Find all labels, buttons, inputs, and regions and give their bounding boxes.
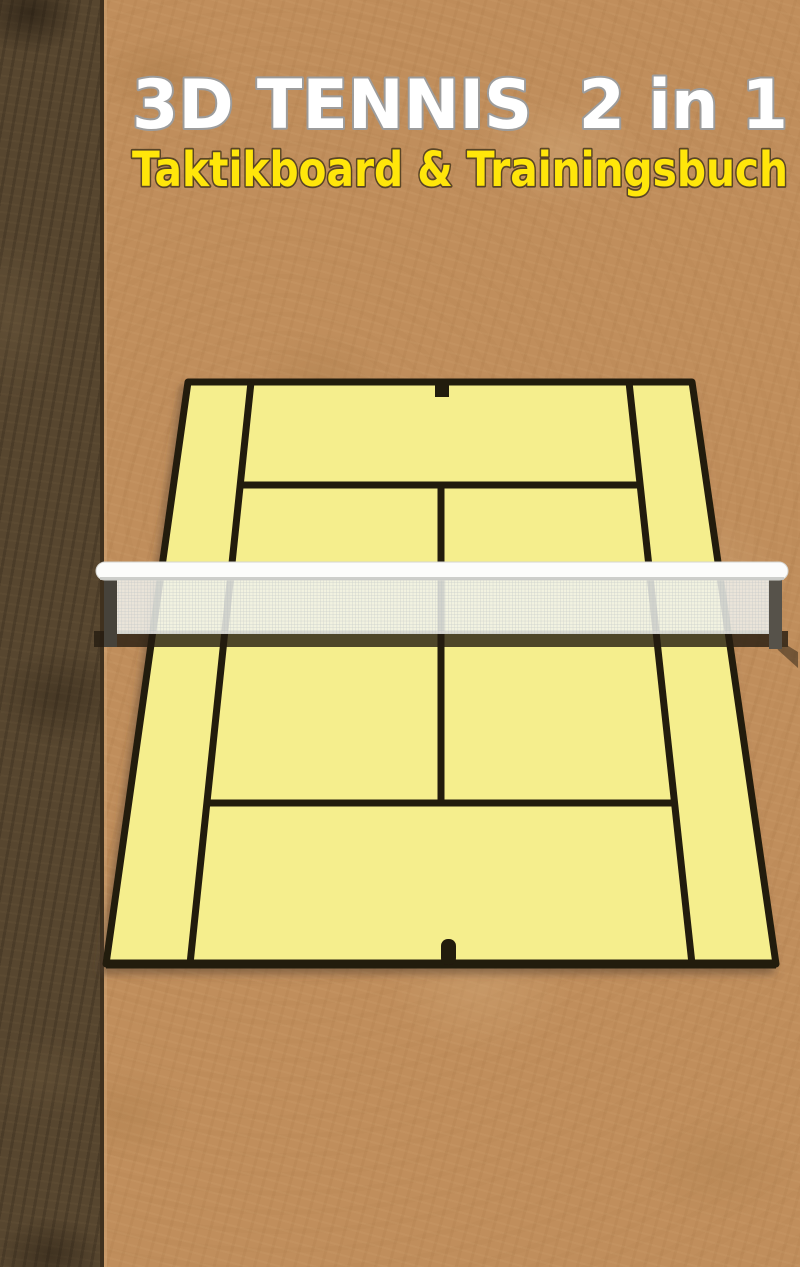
- net-band-shadow-edge: [100, 577, 784, 580]
- center-mark-bottom: [441, 939, 456, 965]
- cover-art: 3D TENNIS 2 in 1 Taktikboard & Trainings…: [0, 0, 800, 1267]
- cover-subtitle: Taktikboard & Trainingsbuch: [132, 142, 788, 198]
- tennis-court: [106, 382, 776, 965]
- net-mesh-grid: [104, 577, 780, 634]
- cover-title: 3D TENNIS 2 in 1: [132, 66, 788, 145]
- book-cover: 3D TENNIS 2 in 1 Taktikboard & Trainings…: [0, 0, 800, 1267]
- net-post-right: [769, 577, 782, 649]
- center-mark-top: [435, 382, 449, 397]
- net-post-left: [104, 577, 117, 647]
